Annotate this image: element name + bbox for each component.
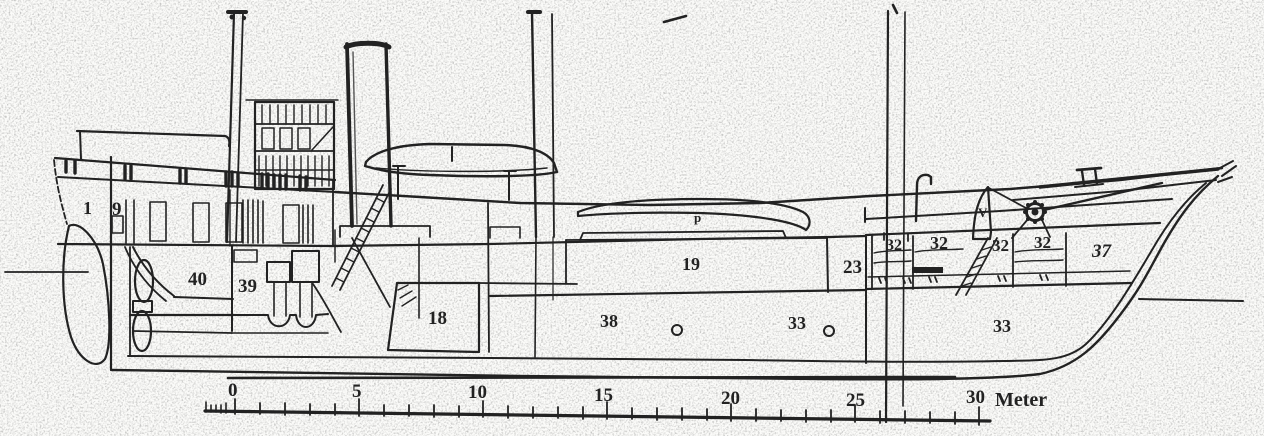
svg-text:38: 38 <box>600 311 618 331</box>
svg-text:33: 33 <box>993 316 1011 336</box>
svg-text:23: 23 <box>843 257 862 278</box>
svg-text:5: 5 <box>352 381 362 402</box>
svg-text:15: 15 <box>594 385 613 406</box>
svg-text:32: 32 <box>886 237 902 254</box>
svg-text:37: 37 <box>1091 241 1113 262</box>
svg-text:25: 25 <box>846 390 865 411</box>
svg-text:39: 39 <box>238 276 257 297</box>
svg-text:32: 32 <box>1034 233 1051 252</box>
svg-text:18: 18 <box>428 308 447 329</box>
svg-text:20: 20 <box>721 388 740 409</box>
svg-text:32: 32 <box>930 233 948 253</box>
svg-text:33: 33 <box>788 313 806 333</box>
svg-text:10: 10 <box>468 382 487 403</box>
svg-text:19: 19 <box>682 254 700 274</box>
svg-text:0: 0 <box>228 380 238 401</box>
svg-text:40: 40 <box>188 269 207 290</box>
svg-text:1: 1 <box>83 198 92 218</box>
svg-text:32: 32 <box>992 236 1009 255</box>
svg-text:p: p <box>694 210 701 225</box>
svg-text:Meter: Meter <box>995 389 1047 411</box>
svg-text:9: 9 <box>112 199 122 220</box>
svg-text:30: 30 <box>966 387 985 408</box>
svg-text:V: V <box>978 205 988 220</box>
